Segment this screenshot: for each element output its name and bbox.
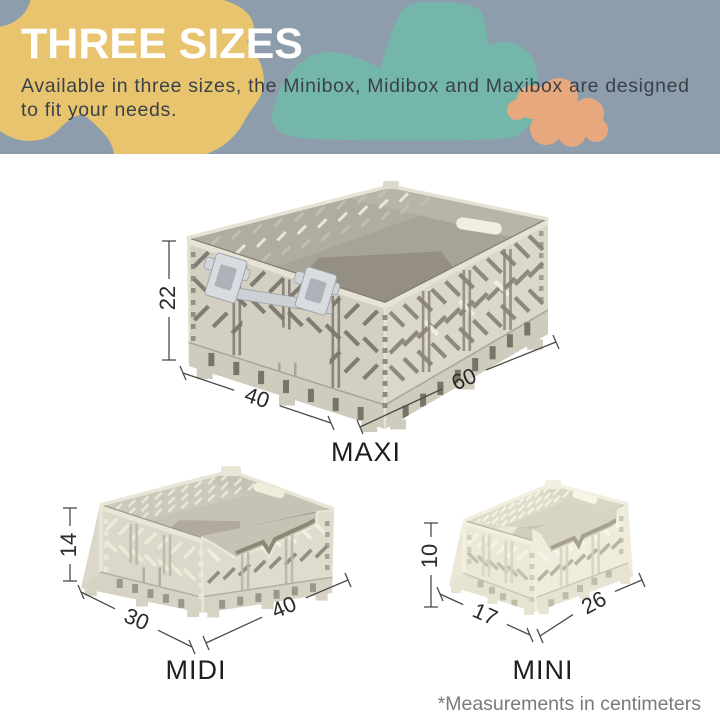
svg-text:to fit your needs.: to fit your needs. <box>21 99 177 121</box>
svg-text:22: 22 <box>155 286 180 310</box>
svg-text:14: 14 <box>56 533 81 557</box>
svg-text:THREE SIZES: THREE SIZES <box>21 20 303 68</box>
svg-text:MINI: MINI <box>513 655 574 685</box>
svg-text:30: 30 <box>121 603 153 636</box>
svg-text:Available in three sizes, the: Available in three sizes, the Minibox, M… <box>21 75 690 97</box>
svg-text:*Measurements in centimeters: *Measurements in centimeters <box>438 693 702 715</box>
svg-text:MAXI: MAXI <box>331 437 401 467</box>
svg-text:10: 10 <box>417 544 442 568</box>
svg-text:MIDI: MIDI <box>166 655 227 685</box>
